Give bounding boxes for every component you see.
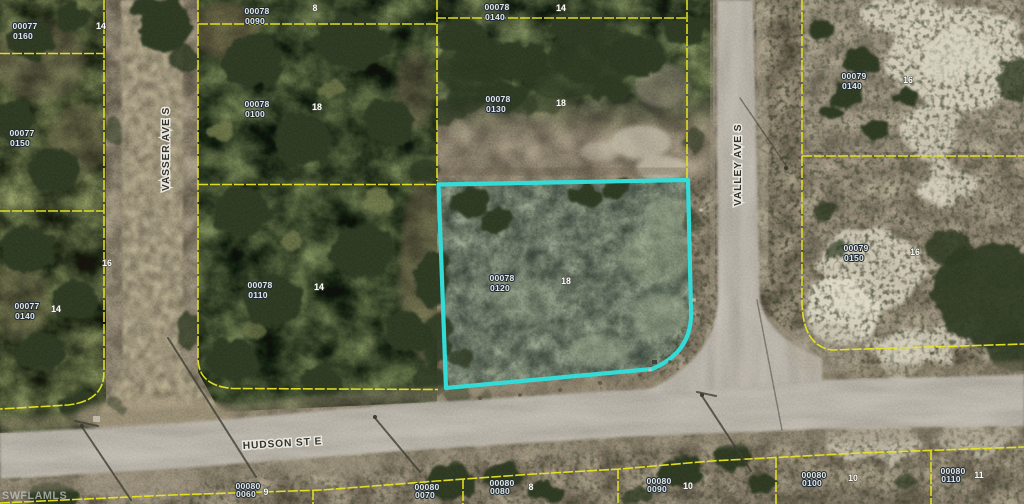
svg-text:00077: 00077 [13, 21, 38, 31]
svg-text:00078: 00078 [245, 99, 270, 109]
svg-text:11: 11 [974, 470, 983, 480]
svg-text:16: 16 [910, 247, 920, 257]
svg-text:0080: 0080 [490, 486, 510, 496]
svg-text:0140: 0140 [842, 81, 862, 91]
svg-text:14: 14 [556, 3, 566, 13]
svg-text:0110: 0110 [248, 290, 267, 300]
svg-text:00078: 00078 [248, 280, 273, 290]
svg-text:16: 16 [903, 75, 913, 85]
svg-text:0100: 0100 [245, 109, 265, 119]
svg-text:0140: 0140 [15, 311, 35, 321]
svg-text:18: 18 [561, 276, 571, 286]
svg-text:SWFLAMLS: SWFLAMLS [2, 490, 67, 502]
svg-text:8: 8 [529, 482, 534, 492]
svg-text:00078: 00078 [485, 2, 510, 12]
svg-text:VALLEY AVE S: VALLEY AVE S [733, 124, 744, 206]
svg-text:00078: 00078 [486, 94, 511, 104]
svg-text:VASSER AVE S: VASSER AVE S [161, 107, 172, 191]
svg-text:00079: 00079 [844, 243, 869, 253]
svg-text:0130: 0130 [486, 104, 506, 114]
svg-text:0110: 0110 [941, 474, 960, 484]
svg-text:00077: 00077 [10, 128, 35, 138]
svg-text:16: 16 [102, 258, 112, 268]
svg-text:00078: 00078 [490, 273, 515, 283]
svg-text:14: 14 [314, 282, 324, 292]
svg-text:0150: 0150 [844, 253, 864, 263]
svg-text:14: 14 [51, 304, 61, 314]
svg-text:0140: 0140 [485, 12, 505, 22]
svg-text:10: 10 [848, 473, 858, 483]
svg-text:18: 18 [312, 102, 322, 112]
svg-text:18: 18 [556, 98, 566, 108]
svg-text:8: 8 [313, 3, 318, 13]
svg-text:00077: 00077 [15, 301, 40, 311]
svg-text:10: 10 [683, 481, 693, 491]
svg-text:0090: 0090 [647, 484, 667, 494]
svg-text:0060: 0060 [236, 489, 256, 499]
svg-text:0150: 0150 [10, 138, 30, 148]
svg-text:0090: 0090 [245, 16, 265, 26]
svg-text:0070: 0070 [415, 490, 435, 500]
svg-text:14: 14 [96, 21, 106, 31]
svg-text:0100: 0100 [802, 478, 822, 488]
svg-text:0120: 0120 [490, 283, 510, 293]
svg-text:00078: 00078 [245, 6, 270, 16]
svg-text:00079: 00079 [842, 71, 867, 81]
svg-text:0160: 0160 [13, 31, 33, 41]
svg-text:9: 9 [264, 487, 269, 497]
